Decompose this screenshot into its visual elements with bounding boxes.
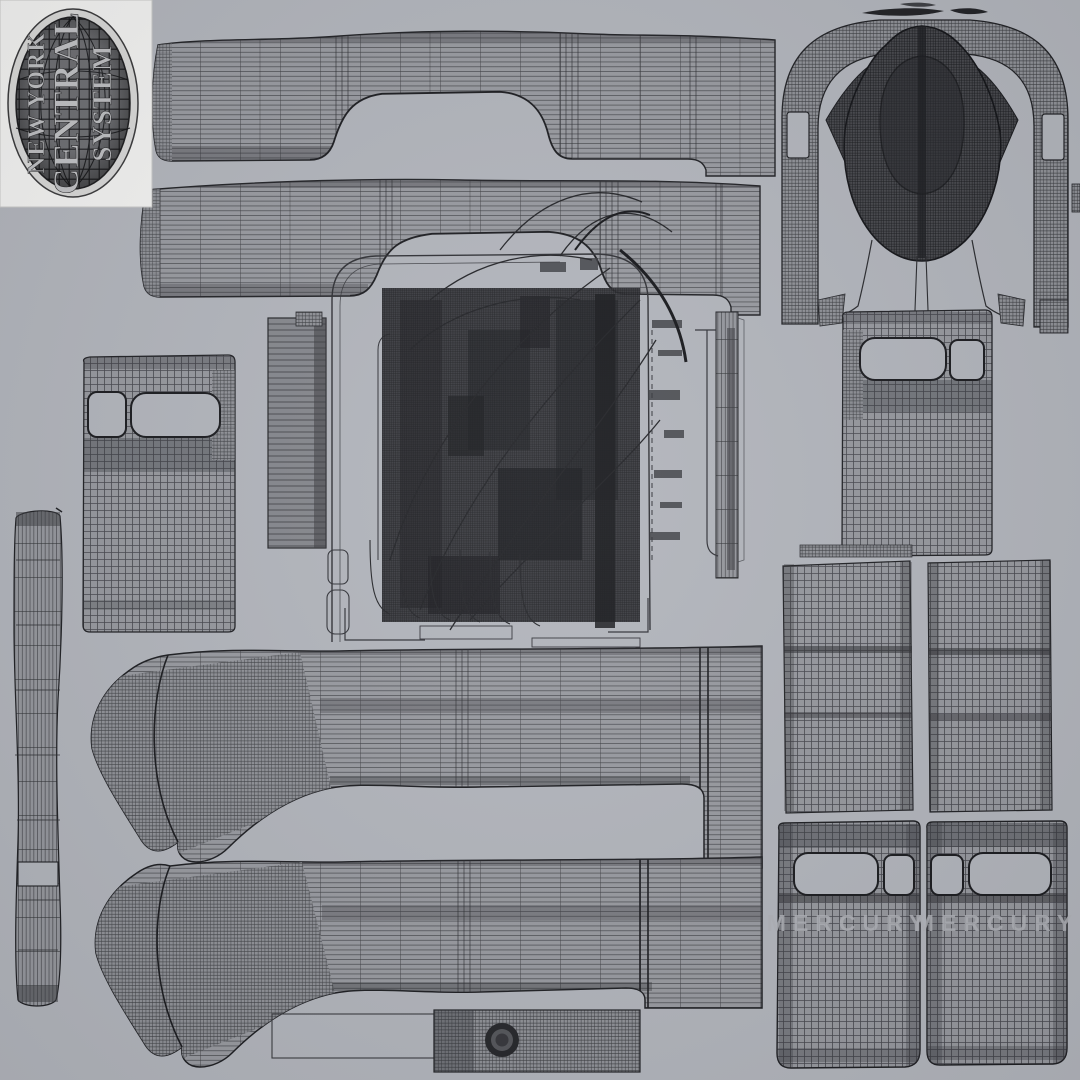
cab-window-panel-left [83,355,235,632]
texture-atlas: MERCURY MERCURY NEW YORK CENTRAL SYSTEM [0,0,1080,1080]
left-pilot-strip [14,508,62,1006]
horseshoe-cutout-left [787,112,809,158]
pilot-strip-cutout [18,862,58,886]
cab-window-panel-right [841,300,1068,556]
roof-sliver-strips [862,3,988,16]
horseshoe-cutout-right [1042,114,1064,160]
mercury-door-panel-right: MERCURY [915,821,1079,1065]
headlight-bar-outline [272,1014,434,1058]
skirt-piece-lower [92,857,764,1069]
nose-teardrop-mesh [818,26,1025,326]
logo-line-central: CENTRAL [46,11,86,194]
headlight-bar [272,1010,640,1072]
mercury-label-left: MERCURY [767,910,931,936]
mercury-door-panel-left: MERCURY [767,821,931,1068]
fender-strip-top [150,30,780,176]
skirt-piece-upper [88,646,765,868]
small-grid-square [1040,300,1068,333]
side-grid-panel-left [783,545,913,813]
atlas-svg: MERCURY MERCURY NEW YORK CENTRAL SYSTEM [0,0,1080,1080]
logo-line-system: SYSTEM [87,44,117,161]
mercury-label-right: MERCURY [915,910,1079,936]
trim-ladder-strip [695,312,744,578]
logo-badge: NEW YORK CENTRAL SYSTEM [0,0,152,207]
side-grid-panel-right [928,560,1052,812]
